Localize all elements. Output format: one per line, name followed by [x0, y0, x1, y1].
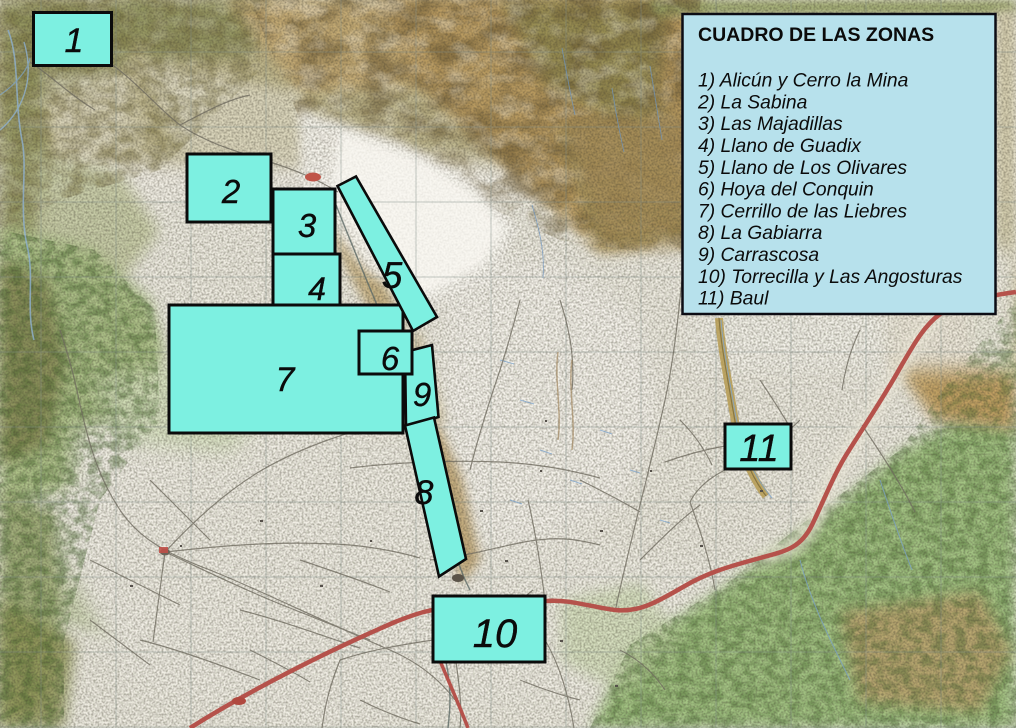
- svg-text:10: 10: [473, 612, 518, 656]
- svg-text:2) La Sabina: 2) La Sabina: [697, 92, 808, 113]
- svg-text:8) La Gabiarra: 8) La Gabiarra: [698, 223, 823, 244]
- svg-text:1) Alicún y Cerro la Mina: 1) Alicún y Cerro la Mina: [698, 71, 909, 92]
- svg-text:11) Baul: 11) Baul: [698, 289, 769, 310]
- svg-text:6: 6: [381, 340, 400, 377]
- svg-text:7: 7: [276, 361, 296, 399]
- svg-text:4: 4: [308, 271, 326, 307]
- svg-text:5: 5: [382, 255, 403, 296]
- svg-text:7) Cerrillo de las Liebres: 7) Cerrillo de las Liebres: [698, 201, 907, 222]
- svg-text:9: 9: [413, 376, 431, 413]
- svg-text:4) Llano de Guadix: 4) Llano de Guadix: [698, 136, 862, 157]
- svg-text:9) Carrascosa: 9) Carrascosa: [698, 245, 819, 266]
- svg-text:5) Llano de Los Olivares: 5) Llano de Los Olivares: [698, 158, 907, 179]
- svg-text:3: 3: [298, 207, 317, 244]
- svg-text:10) Torrecilla y Las Angostura: 10) Torrecilla y Las Angosturas: [698, 267, 963, 288]
- svg-text:8: 8: [415, 474, 434, 512]
- svg-text:11: 11: [739, 428, 778, 470]
- svg-text:1: 1: [65, 22, 84, 60]
- svg-text:3) Las Majadillas: 3) Las Majadillas: [698, 114, 843, 135]
- svg-text:CUADRO DE LAS ZONAS: CUADRO DE LAS ZONAS: [698, 24, 934, 46]
- svg-text:2: 2: [221, 173, 240, 210]
- svg-text:6) Hoya del Conquin: 6) Hoya del Conquin: [698, 180, 874, 201]
